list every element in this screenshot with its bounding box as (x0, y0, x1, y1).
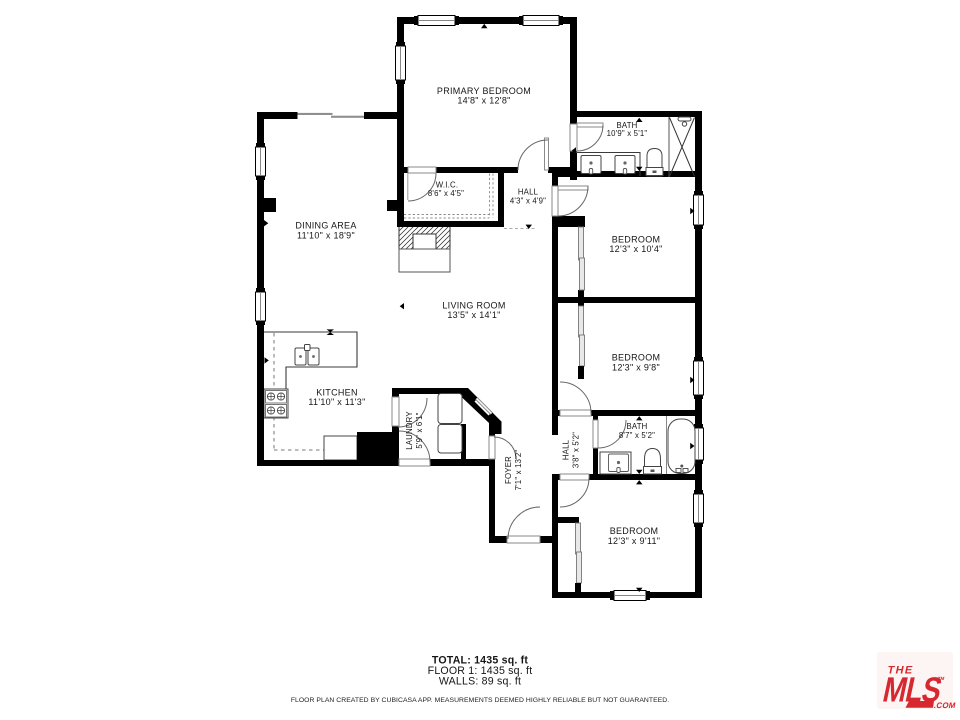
svg-text:DINING AREA: DINING AREA (295, 221, 356, 231)
svg-text:10'9" x 5'1": 10'9" x 5'1" (607, 129, 648, 138)
svg-text:KITCHEN: KITCHEN (316, 388, 358, 398)
svg-text:.COM: .COM (933, 701, 957, 710)
svg-text:11'10" x 11'3": 11'10" x 11'3" (308, 397, 365, 407)
svg-text:TM: TM (937, 676, 945, 681)
svg-text:12'3" x 9'8": 12'3" x 9'8" (612, 363, 660, 373)
svg-text:WALLS: 89 sq. ft: WALLS: 89 sq. ft (439, 676, 521, 688)
svg-text:14'8" x 12'8": 14'8" x 12'8" (457, 96, 510, 106)
svg-text:5'9" x 6'1": 5'9" x 6'1" (415, 412, 424, 448)
svg-text:12'3" x 10'4": 12'3" x 10'4" (609, 244, 662, 254)
svg-text:BATH: BATH (626, 422, 647, 431)
svg-text:7'1" x 13'2": 7'1" x 13'2" (514, 450, 523, 491)
svg-text:BEDROOM: BEDROOM (612, 235, 661, 245)
svg-text:LAUNDRY: LAUNDRY (405, 411, 414, 450)
svg-text:12'3" x 9'11": 12'3" x 9'11" (608, 536, 661, 546)
svg-text:8'7" x 5'2": 8'7" x 5'2" (619, 431, 655, 440)
svg-text:PRIMARY BEDROOM: PRIMARY BEDROOM (437, 86, 531, 96)
svg-text:8'6" x 4'5": 8'6" x 4'5" (428, 189, 464, 198)
svg-text:11'10" x 18'9": 11'10" x 18'9" (297, 231, 355, 241)
svg-text:BEDROOM: BEDROOM (612, 353, 661, 363)
svg-text:LIVING ROOM: LIVING ROOM (442, 301, 505, 311)
svg-text:3'8" x 5'2": 3'8" x 5'2" (572, 432, 581, 468)
svg-text:FOYER: FOYER (504, 456, 513, 484)
svg-text:HALL: HALL (518, 188, 539, 197)
svg-text:4'3" x 4'9": 4'3" x 4'9" (510, 197, 546, 206)
svg-text:HALL: HALL (562, 439, 571, 460)
svg-text:13'5" x 14'1": 13'5" x 14'1" (447, 310, 500, 320)
svg-text:BEDROOM: BEDROOM (610, 526, 659, 536)
svg-text:FLOOR PLAN CREATED BY CUBICASA: FLOOR PLAN CREATED BY CUBICASA APP. MEAS… (291, 697, 669, 704)
